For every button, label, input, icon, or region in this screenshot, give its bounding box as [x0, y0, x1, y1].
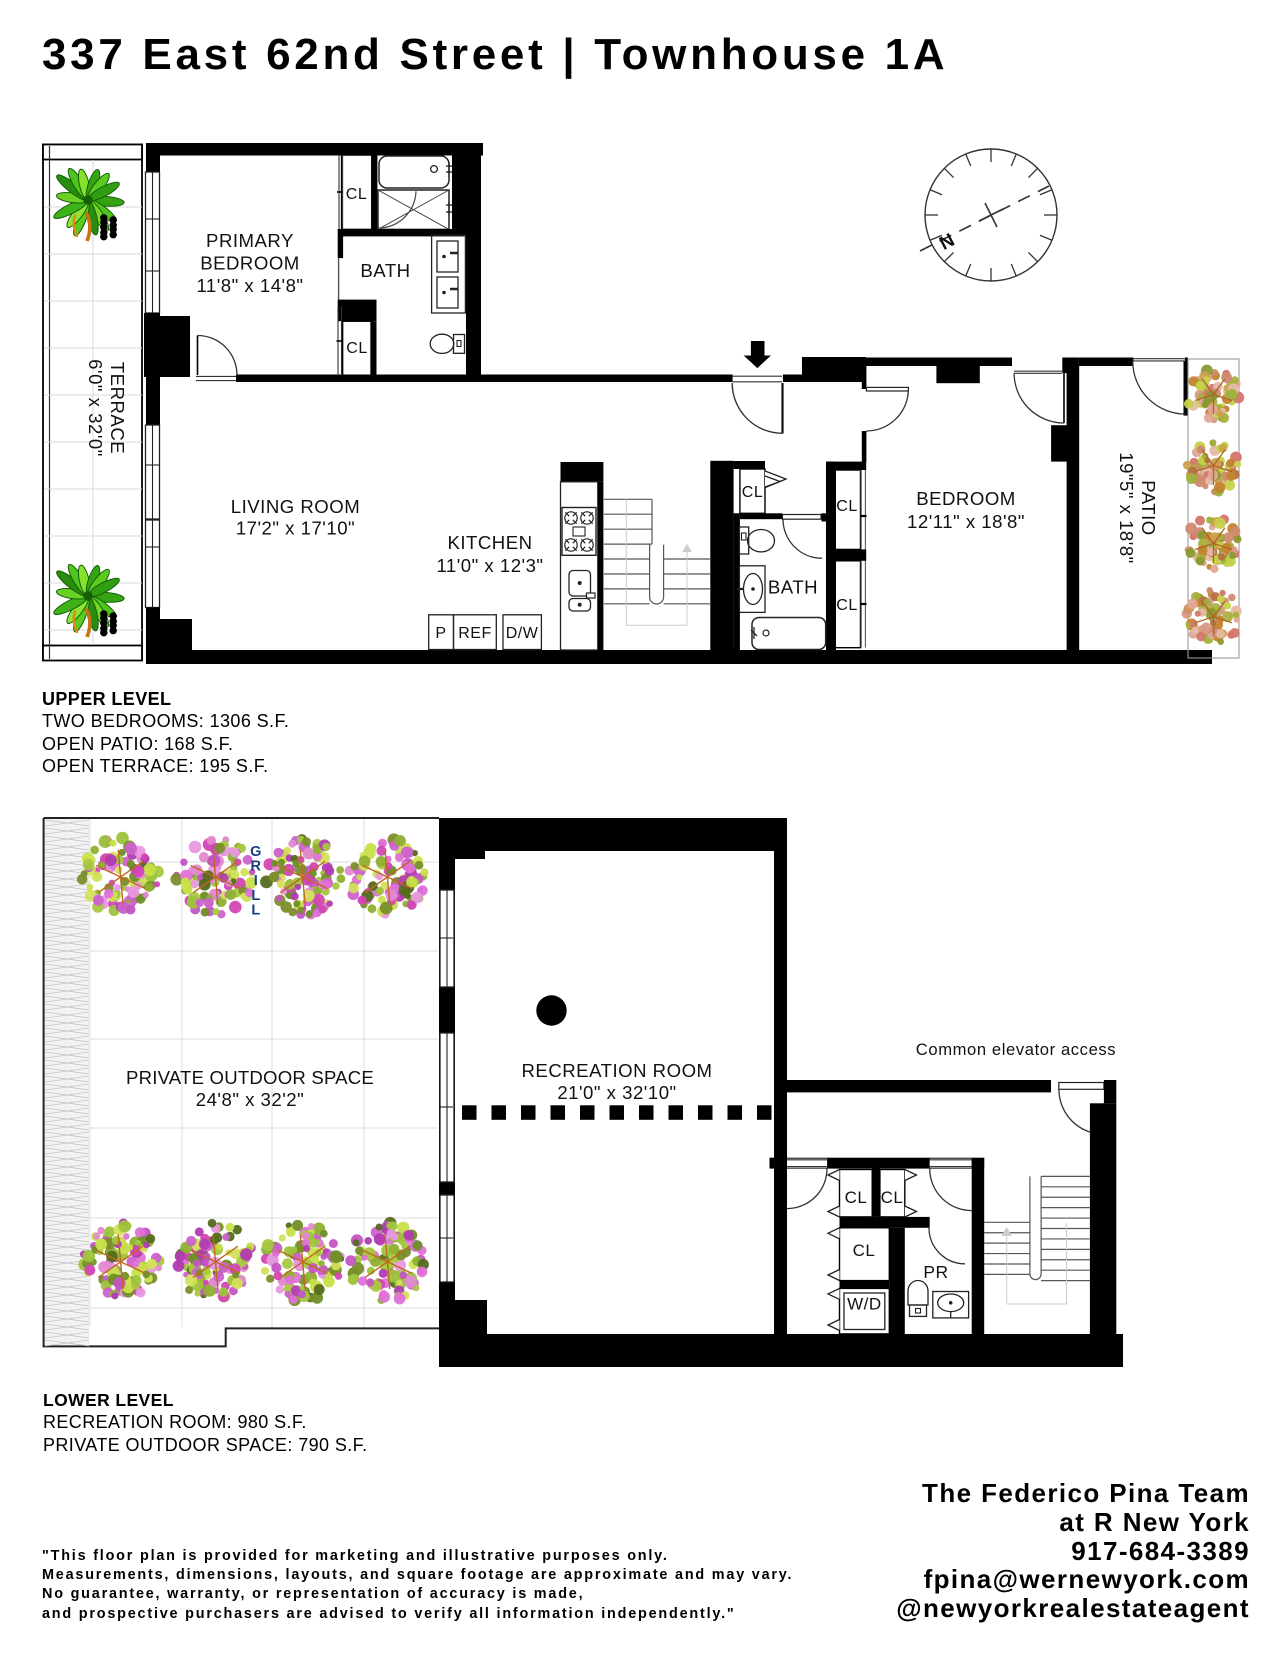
- svg-text:D/W: D/W: [506, 625, 539, 642]
- svg-text:G: G: [250, 844, 262, 860]
- svg-text:21'0" x 32'10": 21'0" x 32'10": [557, 1082, 676, 1103]
- svg-text:CL: CL: [742, 484, 763, 501]
- svg-text:12'11" x 18'8": 12'11" x 18'8": [907, 511, 1025, 532]
- svg-text:BEDROOM: BEDROOM: [200, 253, 300, 274]
- svg-text:PRIVATE OUTDOOR SPACE: PRIVATE OUTDOOR SPACE: [126, 1067, 374, 1088]
- svg-text:24'8" x 32'2": 24'8" x 32'2": [196, 1089, 304, 1110]
- svg-text:PR: PR: [923, 1262, 948, 1282]
- svg-text:CL: CL: [836, 597, 857, 614]
- svg-text:BEDROOM: BEDROOM: [916, 488, 1016, 509]
- svg-text:CL: CL: [845, 1188, 868, 1207]
- svg-text:CL: CL: [346, 186, 367, 203]
- svg-text:BATH: BATH: [768, 577, 818, 598]
- svg-text:I: I: [254, 873, 259, 889]
- svg-text:Common elevator access: Common elevator access: [916, 1040, 1116, 1059]
- svg-text:BATH: BATH: [360, 260, 410, 281]
- svg-text:W/D: W/D: [847, 1295, 882, 1314]
- svg-text:CL: CL: [853, 1241, 876, 1260]
- svg-text:PRIMARY: PRIMARY: [206, 230, 294, 251]
- svg-text:11'8" x 14'8": 11'8" x 14'8": [196, 275, 303, 296]
- svg-text:6'0" x 32'0": 6'0" x 32'0": [85, 359, 106, 457]
- svg-text:CL: CL: [836, 498, 857, 515]
- svg-text:L: L: [251, 902, 260, 918]
- svg-text:N: N: [936, 230, 958, 255]
- svg-text:R: R: [251, 859, 262, 875]
- svg-text:17'2" x 17'10": 17'2" x 17'10": [236, 518, 355, 539]
- svg-text:P: P: [435, 625, 446, 642]
- svg-text:KITCHEN: KITCHEN: [447, 532, 532, 553]
- svg-text:PATIO: PATIO: [1138, 480, 1159, 536]
- svg-text:REF: REF: [458, 625, 492, 642]
- svg-text:19"5" x 18'8": 19"5" x 18'8": [1116, 452, 1137, 564]
- svg-text:TERRACE: TERRACE: [107, 362, 128, 454]
- svg-text:L: L: [251, 888, 260, 904]
- svg-text:RECREATION ROOM: RECREATION ROOM: [521, 1060, 712, 1081]
- svg-text:11'0" x 12'3": 11'0" x 12'3": [436, 555, 543, 576]
- svg-text:LIVING ROOM: LIVING ROOM: [231, 496, 360, 517]
- svg-text:CL: CL: [881, 1188, 904, 1207]
- svg-text:CL: CL: [346, 340, 367, 357]
